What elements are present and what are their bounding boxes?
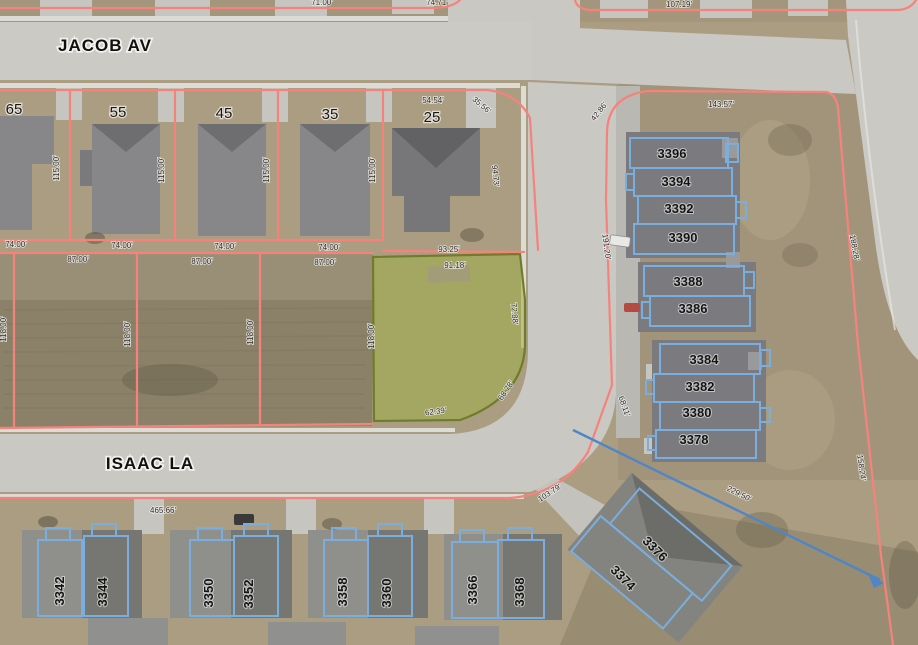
building-number-label: 3388 bbox=[674, 274, 703, 289]
building-number-label: 3378 bbox=[680, 432, 709, 447]
lot-number-label: 65 bbox=[6, 101, 23, 118]
building-number-label: 3342 bbox=[52, 577, 67, 606]
dimension-label: 118.00' bbox=[246, 319, 255, 345]
dimension-label: 107.19' bbox=[666, 0, 692, 9]
building-number-label: 3350 bbox=[201, 579, 216, 608]
street-label: JACOB AV bbox=[58, 36, 152, 55]
dimension-label: 115.00' bbox=[52, 155, 61, 181]
dimension-label: 115.00' bbox=[262, 157, 271, 183]
dimension-label: 74.00' bbox=[318, 243, 340, 252]
dimension-label: 118.00' bbox=[123, 321, 132, 347]
dimension-label: 115.00' bbox=[157, 157, 166, 183]
parcel-map-canvas: JACOB AVISAAC LA655545352533963394339233… bbox=[0, 0, 918, 645]
dimension-label: 143.57' bbox=[708, 100, 734, 109]
dimension-label: 87.00' bbox=[67, 255, 89, 264]
building-number-label: 3358 bbox=[335, 578, 350, 607]
building-number-label: 3386 bbox=[679, 301, 708, 316]
street-label: ISAAC LA bbox=[106, 454, 194, 473]
dimension-label: 87.00' bbox=[191, 257, 213, 266]
building-number-label: 3382 bbox=[686, 379, 715, 394]
dimension-label: 74.00' bbox=[111, 241, 133, 250]
dimension-label: 115.00' bbox=[368, 157, 377, 183]
building-number-label: 3390 bbox=[669, 230, 698, 245]
dimension-label: 54.54' bbox=[422, 96, 444, 105]
dimension-label: 72.88' bbox=[509, 303, 520, 326]
dimension-label: 71.00' bbox=[311, 0, 333, 7]
building-number-label: 3344 bbox=[95, 577, 110, 607]
car-red bbox=[624, 303, 640, 312]
lot-number-label: 45 bbox=[216, 105, 233, 122]
lot-number-label: 35 bbox=[322, 106, 339, 123]
building-number-label: 3394 bbox=[662, 174, 692, 189]
dimension-label: 93.25' bbox=[438, 245, 460, 254]
dimension-label: 87.00' bbox=[314, 258, 336, 267]
building-number-label: 3368 bbox=[512, 578, 527, 607]
building-number-label: 3392 bbox=[665, 201, 694, 216]
parcel-map-viewport: JACOB AVISAAC LA655545352533963394339233… bbox=[0, 0, 918, 645]
dimension-label: 91.18' bbox=[444, 261, 466, 270]
dimension-label: 74.71' bbox=[426, 0, 448, 7]
building-number-label: 3380 bbox=[683, 405, 712, 420]
lot-number-label: 55 bbox=[110, 104, 127, 121]
dimension-label: 94.73' bbox=[490, 165, 501, 188]
dimension-label: 465.66' bbox=[150, 506, 176, 515]
building-number-label: 3352 bbox=[241, 580, 256, 609]
building-number-label: 3384 bbox=[690, 352, 720, 367]
dimension-label: 118.00' bbox=[367, 323, 376, 349]
dimension-label: 74.00' bbox=[5, 240, 27, 249]
dimension-label: 74.00' bbox=[214, 242, 236, 251]
building-number-label: 3360 bbox=[379, 579, 394, 608]
building-number-label: 3396 bbox=[658, 146, 687, 161]
building-number-label: 3366 bbox=[465, 576, 480, 605]
dimension-label: 118.00' bbox=[0, 316, 8, 342]
lot-number-label: 25 bbox=[424, 109, 441, 126]
